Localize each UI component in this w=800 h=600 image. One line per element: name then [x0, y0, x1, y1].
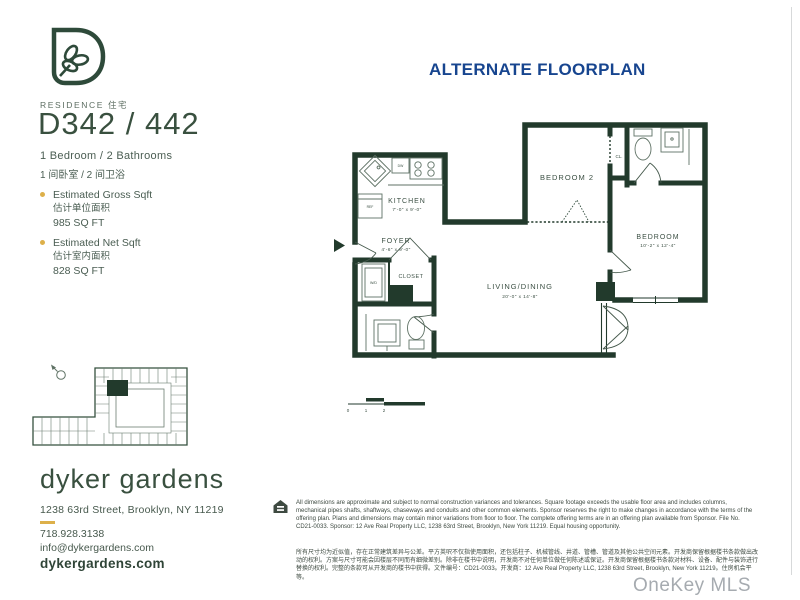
room-label-closet: CLOSET	[398, 274, 423, 280]
room-dims-foyer: 4'-6" x 9'-0"	[381, 247, 410, 253]
room-dims-kitchen: 7'-0" x 9'-0"	[392, 207, 421, 213]
equal-housing-icon	[272, 499, 289, 514]
dyker-gardens-logo	[40, 22, 110, 92]
building-key-plan	[30, 363, 260, 463]
net-sqft-title: Estimated Net Sqft	[53, 236, 141, 250]
bathroom2-fixtures	[634, 128, 689, 165]
disclaimer-en: All dimensions are approximate and subje…	[296, 499, 758, 531]
page-title: ALTERNATE FLOORPLAN	[429, 60, 646, 80]
gross-sqft-value: 985 SQ FT	[53, 216, 152, 230]
room-dims-bedroom: 10'-2" x 12'-4"	[640, 243, 676, 249]
appliance-label-ref: REF	[367, 205, 374, 209]
gross-sqft-item: Estimated Gross Sqft 估计单位面积 985 SQ FT	[40, 188, 152, 230]
logo-leaf-icon	[60, 44, 89, 76]
gross-sqft-zh: 估计单位面积	[53, 202, 152, 216]
entry-arrow-icon	[334, 239, 345, 252]
stove-icon	[410, 158, 442, 179]
beds-baths-zh: 1 间卧室 / 2 间卫浴	[40, 166, 125, 181]
phone: 718.928.3138	[40, 528, 104, 540]
balcony-doors	[602, 303, 629, 353]
sink-icon	[661, 128, 683, 152]
room-label-foyer: FOYER	[381, 238, 410, 245]
net-sqft-zh: 估计室内面积	[53, 250, 141, 264]
alternate-door-dashed	[562, 200, 589, 222]
compass-icon	[51, 365, 65, 380]
net-sqft-item: Estimated Net Sqft 估计室内面积 828 SQ FT	[40, 236, 141, 278]
room-label-living: LIVING/DINING	[487, 282, 553, 291]
residence-number: D342 / 442	[38, 106, 200, 142]
appliance-label-dw: DW	[398, 164, 404, 168]
bullet-icon	[40, 240, 45, 245]
closet-wall-block	[389, 285, 413, 304]
bedroom-window	[633, 296, 678, 304]
room-dims-living: 20'-0" x 14'-8"	[502, 294, 538, 300]
room-label-cl: CL.	[615, 154, 622, 159]
watermark: OneKey MLS	[633, 575, 751, 597]
highlighted-unit	[107, 380, 128, 396]
scale-tick-2: 2	[383, 408, 386, 413]
net-sqft-value: 828 SQ FT	[53, 264, 141, 278]
gross-sqft-title: Estimated Gross Sqft	[53, 188, 152, 202]
website: dykergardens.com	[40, 556, 165, 571]
email: info@dykergardens.com	[40, 542, 154, 554]
wall-corner-block	[596, 282, 615, 301]
scale-tick-1: 1	[365, 408, 368, 413]
scale-bar: 0 1 2	[347, 398, 425, 413]
accent-divider	[40, 521, 55, 524]
appliance-label-wd: W/D	[370, 281, 377, 285]
sink-icon	[359, 155, 390, 186]
floorplan-diagram: KITCHEN 7'-0" x 9'-0" FOYER 4'-6" x 9'-0…	[330, 108, 725, 415]
toilet-icon	[408, 317, 425, 350]
room-label-bedroom: BEDROOM	[636, 234, 679, 241]
scale-tick-0: 0	[347, 408, 350, 413]
room-label-bedroom2: BEDROOM 2	[540, 173, 594, 182]
brand-name: dyker gardens	[40, 464, 224, 495]
beds-baths-en: 1 Bedroom / 2 Bathrooms	[40, 150, 172, 162]
page-edge-line	[791, 7, 792, 575]
room-label-kitchen: KITCHEN	[388, 198, 426, 205]
address: 1238 63rd Street, Brooklyn, NY 11219	[40, 504, 224, 516]
bullet-icon	[40, 192, 45, 197]
floorplan-brochure-page: RESIDENCE 住宅 D342 / 442 1 Bedroom / 2 Ba…	[0, 0, 800, 600]
toilet-icon	[634, 129, 652, 160]
bathroom1-fixtures	[366, 314, 425, 351]
